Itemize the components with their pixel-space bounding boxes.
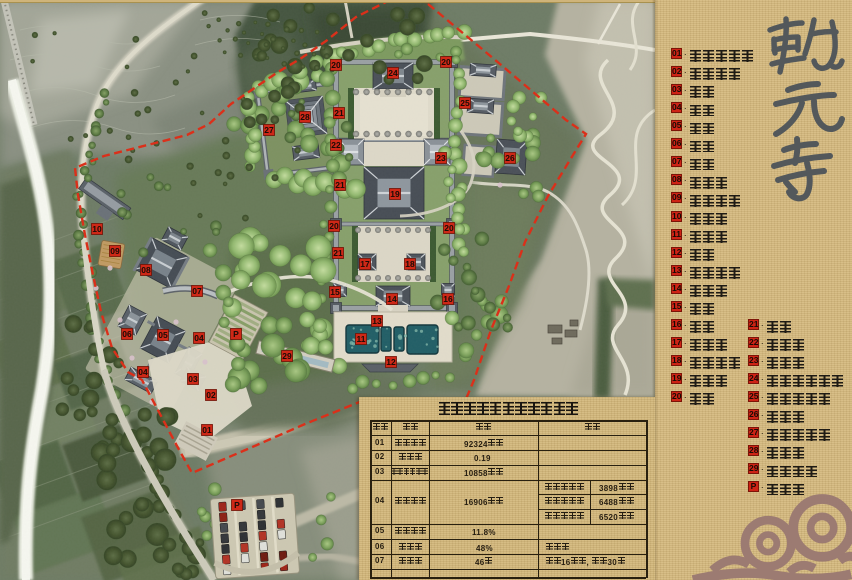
- svg-text:21: 21: [334, 108, 344, 118]
- svg-text:22: 22: [331, 140, 341, 150]
- svg-text:13: 13: [372, 316, 382, 326]
- svg-text:27: 27: [264, 125, 274, 135]
- svg-text:01: 01: [202, 425, 212, 435]
- svg-text:P: P: [234, 500, 240, 510]
- svg-text:03: 03: [188, 374, 198, 384]
- svg-text:20: 20: [441, 57, 451, 67]
- svg-text:11: 11: [357, 334, 366, 344]
- svg-text:16: 16: [443, 294, 453, 304]
- svg-text:08: 08: [141, 265, 151, 275]
- svg-text:18: 18: [405, 259, 415, 269]
- svg-text:19: 19: [390, 189, 400, 199]
- svg-text:20: 20: [329, 221, 339, 231]
- svg-text:23: 23: [436, 153, 446, 163]
- svg-text:12: 12: [386, 357, 396, 367]
- svg-text:14: 14: [387, 294, 397, 304]
- svg-text:07: 07: [192, 286, 202, 296]
- svg-text:29: 29: [282, 351, 292, 361]
- svg-text:21: 21: [333, 248, 343, 258]
- svg-text:02: 02: [206, 390, 216, 400]
- svg-text:P: P: [233, 329, 239, 339]
- svg-text:20: 20: [444, 223, 454, 233]
- svg-text:28: 28: [300, 112, 310, 122]
- svg-text:25: 25: [460, 98, 470, 108]
- svg-text:05: 05: [158, 330, 168, 340]
- svg-text:24: 24: [388, 68, 398, 78]
- svg-text:15: 15: [330, 287, 340, 297]
- svg-text:04: 04: [138, 367, 148, 377]
- svg-text:20: 20: [331, 60, 341, 70]
- svg-text:21: 21: [335, 180, 345, 190]
- svg-text:10: 10: [92, 224, 102, 234]
- svg-text:26: 26: [505, 153, 515, 163]
- svg-text:06: 06: [122, 329, 132, 339]
- svg-text:17: 17: [360, 259, 370, 269]
- svg-text:04: 04: [194, 333, 204, 343]
- svg-text:09: 09: [110, 246, 120, 256]
